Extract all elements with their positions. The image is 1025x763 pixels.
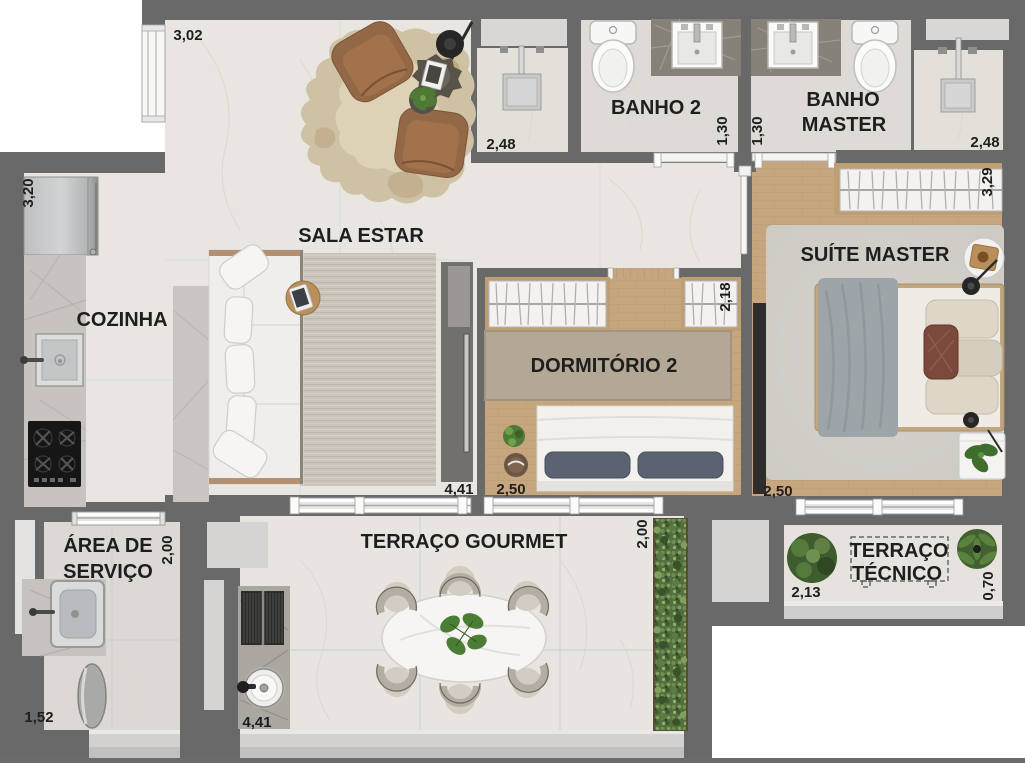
svg-text:3,29: 3,29 <box>979 167 996 196</box>
svg-text:COZINHA: COZINHA <box>76 309 167 331</box>
svg-text:0,70: 0,70 <box>980 571 997 600</box>
svg-text:4,41: 4,41 <box>444 481 473 498</box>
svg-text:BANHO 2: BANHO 2 <box>611 97 701 119</box>
svg-text:1,52: 1,52 <box>24 709 53 726</box>
svg-text:TÉCNICO: TÉCNICO <box>852 562 942 585</box>
svg-text:1,30: 1,30 <box>749 116 766 145</box>
svg-text:2,48: 2,48 <box>486 136 515 153</box>
svg-text:ÁREA DE: ÁREA DE <box>63 534 152 557</box>
svg-text:SALA ESTAR: SALA ESTAR <box>298 225 424 247</box>
svg-text:TERRAÇO GOURMET: TERRAÇO GOURMET <box>361 531 568 553</box>
svg-text:SUÍTE MASTER: SUÍTE MASTER <box>801 243 950 266</box>
svg-text:DORMITÓRIO 2: DORMITÓRIO 2 <box>531 353 678 377</box>
svg-text:3,02: 3,02 <box>173 27 202 44</box>
svg-text:2,00: 2,00 <box>159 535 176 564</box>
svg-text:SERVIÇO: SERVIÇO <box>63 561 153 583</box>
svg-text:2,00: 2,00 <box>634 519 651 548</box>
svg-text:2,50: 2,50 <box>763 483 792 500</box>
svg-text:1,30: 1,30 <box>714 116 731 145</box>
svg-text:2,50: 2,50 <box>496 481 525 498</box>
svg-text:BANHO: BANHO <box>806 89 879 111</box>
svg-text:TERRAÇO: TERRAÇO <box>850 540 949 562</box>
svg-text:4,41: 4,41 <box>242 714 271 731</box>
svg-text:MASTER: MASTER <box>802 114 887 136</box>
svg-text:2,48: 2,48 <box>970 134 999 151</box>
svg-text:3,20: 3,20 <box>20 178 37 207</box>
svg-text:2,18: 2,18 <box>717 282 734 311</box>
svg-text:2,13: 2,13 <box>791 584 820 601</box>
